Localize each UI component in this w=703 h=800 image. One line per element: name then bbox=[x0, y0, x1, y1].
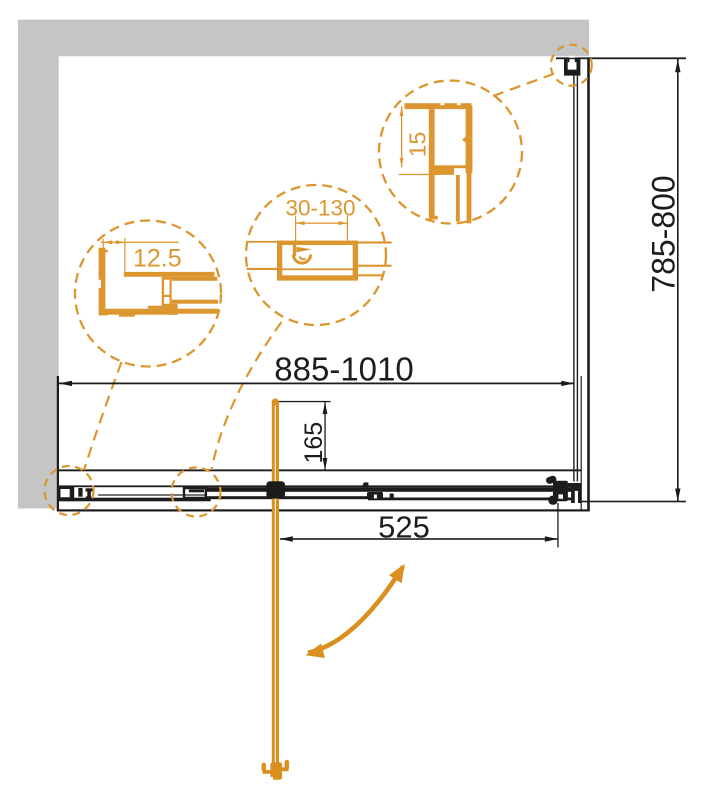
svg-text:15: 15 bbox=[405, 132, 431, 158]
svg-text:165: 165 bbox=[300, 422, 328, 464]
svg-text:525: 525 bbox=[378, 510, 430, 545]
svg-text:30-130: 30-130 bbox=[285, 195, 355, 220]
svg-text:785-800: 785-800 bbox=[646, 175, 682, 292]
svg-text:12.5: 12.5 bbox=[133, 245, 182, 273]
svg-text:885-1010: 885-1010 bbox=[274, 351, 413, 388]
